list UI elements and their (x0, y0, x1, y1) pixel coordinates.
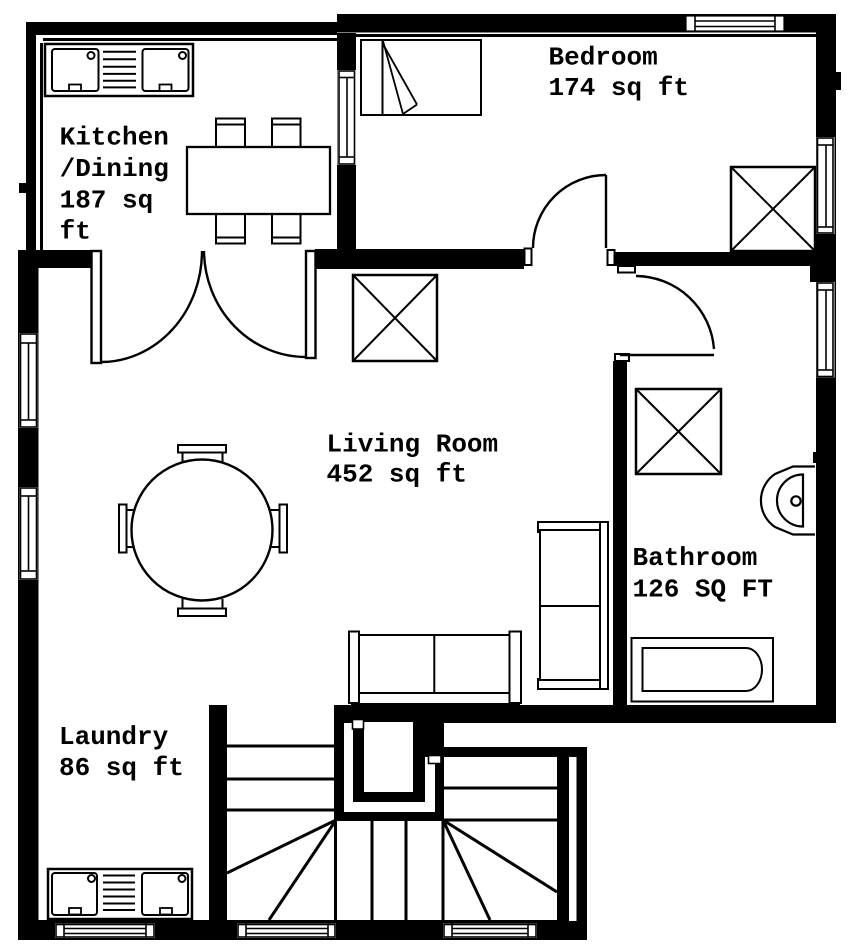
svg-text:ft: ft (60, 217, 91, 247)
svg-text:187 sq: 187 sq (60, 186, 154, 216)
svg-text:174 sq ft: 174 sq ft (549, 73, 689, 103)
svg-text:452 sq ft: 452 sq ft (327, 460, 467, 490)
svg-text:126 SQ FT: 126 SQ FT (633, 575, 773, 605)
svg-text:Laundry: Laundry (59, 722, 169, 752)
svg-text:Living Room: Living Room (327, 430, 499, 460)
svg-text:Bedroom: Bedroom (549, 43, 658, 73)
svg-text:Bathroom: Bathroom (633, 543, 758, 573)
svg-text:Kitchen: Kitchen (60, 123, 169, 153)
svg-text:/Dining: /Dining (60, 154, 169, 184)
svg-text:86 sq ft: 86 sq ft (59, 753, 184, 783)
